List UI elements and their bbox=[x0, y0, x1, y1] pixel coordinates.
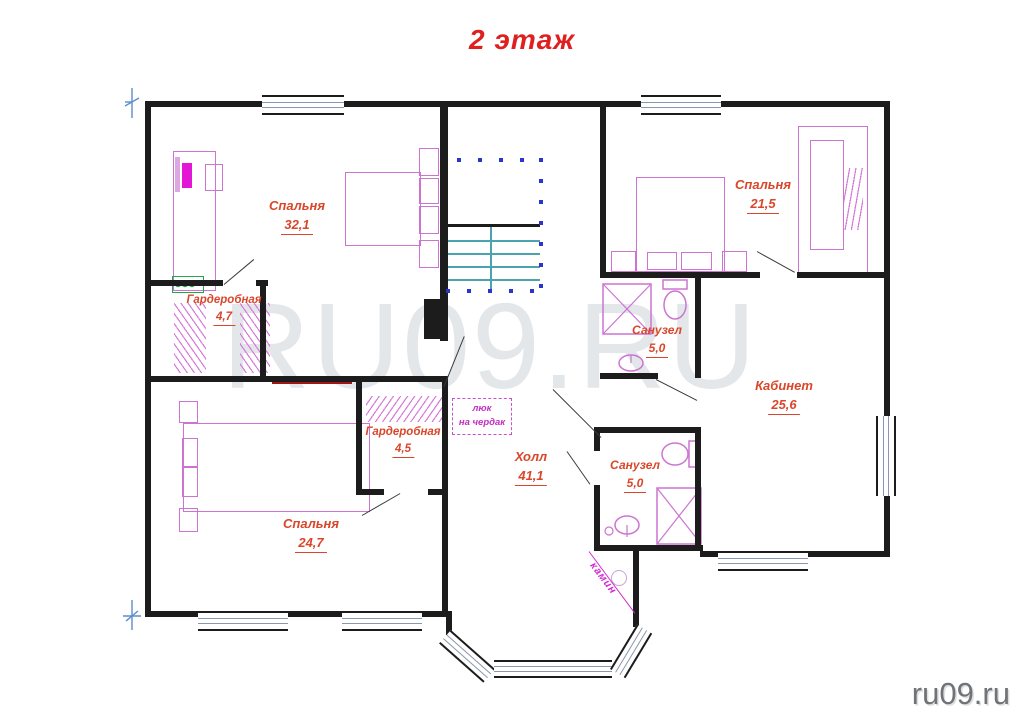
stairs-center-line bbox=[490, 226, 492, 292]
stairs-railing bbox=[446, 289, 543, 293]
door-leaf bbox=[567, 451, 591, 484]
room-label-wardrobe2: Гардеробная 4,5 bbox=[365, 426, 440, 458]
wall bbox=[151, 280, 223, 286]
site-credit: ru09.ru bbox=[912, 676, 1010, 712]
room-area: 41,1 bbox=[515, 469, 546, 486]
room-area: 5,0 bbox=[624, 477, 647, 493]
axis-break-mark bbox=[122, 88, 142, 118]
pillow bbox=[182, 438, 198, 467]
bay-window-left bbox=[439, 630, 495, 683]
wall bbox=[356, 489, 384, 495]
room-name: Спальня bbox=[269, 199, 325, 214]
room-area: 5,0 bbox=[646, 342, 669, 358]
nightstand bbox=[179, 508, 198, 532]
wall bbox=[633, 551, 639, 627]
nightstand bbox=[611, 251, 636, 272]
wall bbox=[594, 545, 703, 551]
room-area: 32,1 bbox=[281, 218, 312, 235]
pillow bbox=[419, 178, 439, 204]
room-area: 4,7 bbox=[213, 311, 235, 326]
room-label-bedroom3: Спальня 21,5 bbox=[735, 178, 791, 214]
nightstand bbox=[419, 240, 439, 268]
room-label-wardrobe1: Гардеробная 4,7 bbox=[186, 294, 261, 326]
bed bbox=[345, 172, 421, 246]
wall bbox=[594, 427, 701, 433]
window bbox=[718, 551, 808, 571]
stairs-landing-edge bbox=[446, 224, 540, 227]
room-area: 21,5 bbox=[747, 197, 778, 214]
room-label-bedroom1: Спальня 32,1 bbox=[269, 199, 325, 235]
wall bbox=[600, 373, 658, 379]
window bbox=[641, 95, 721, 115]
room-name: Гардеробная bbox=[186, 294, 261, 307]
stairs-railing bbox=[539, 158, 543, 293]
monitor bbox=[182, 163, 192, 188]
nightstand bbox=[419, 148, 439, 176]
stairs-step bbox=[446, 266, 540, 268]
room-label-bedroom2: Спальня 24,7 bbox=[283, 517, 339, 553]
room-name: Спальня bbox=[735, 178, 791, 193]
page-title: 2 этаж bbox=[0, 24, 1024, 56]
bed bbox=[183, 423, 370, 512]
door-leaf bbox=[757, 251, 795, 273]
room-label-office: Кабинет 25,6 bbox=[755, 379, 813, 415]
pillow bbox=[681, 252, 712, 270]
wall bbox=[600, 101, 606, 272]
wall bbox=[145, 101, 151, 617]
room-label-bathroom2: Санузел 5,0 bbox=[610, 459, 660, 493]
chair bbox=[205, 164, 223, 191]
nightstand bbox=[722, 251, 747, 272]
window bbox=[876, 416, 896, 496]
pillow bbox=[182, 467, 198, 497]
sink bbox=[603, 513, 641, 541]
room-area: 25,6 bbox=[768, 398, 799, 415]
wardrobe-shelves-hatch bbox=[844, 168, 863, 230]
wardrobe-shelves-hatch bbox=[366, 396, 446, 422]
wall bbox=[442, 382, 448, 489]
pillow bbox=[647, 252, 677, 270]
stairs-step bbox=[446, 279, 540, 281]
wall bbox=[442, 489, 448, 611]
room-name: Санузел bbox=[632, 324, 682, 338]
wall bbox=[797, 272, 890, 278]
wall bbox=[695, 278, 701, 378]
attic-hatch-label-line2: на чердак bbox=[453, 416, 511, 430]
room-name: Гардеробная bbox=[365, 426, 440, 439]
stairs-railing bbox=[457, 158, 543, 162]
window bbox=[342, 611, 422, 631]
wall bbox=[594, 485, 600, 551]
wall-marker bbox=[272, 382, 352, 384]
stairs-step bbox=[446, 240, 540, 242]
floor-plan-page: RU09.RU 2 этаж bbox=[0, 0, 1024, 723]
axis-break-mark bbox=[122, 600, 142, 630]
wall bbox=[695, 427, 701, 551]
attic-hatch-box: люк на чердак bbox=[452, 398, 512, 435]
room-label-bathroom1: Санузел 5,0 bbox=[632, 324, 682, 358]
wall bbox=[424, 299, 442, 339]
room-name: Кабинет bbox=[755, 379, 813, 394]
toilet bbox=[661, 279, 689, 323]
pillow bbox=[419, 206, 439, 234]
room-name: Спальня bbox=[283, 517, 339, 532]
window bbox=[198, 611, 288, 631]
wall bbox=[145, 101, 890, 107]
room-area: 24,7 bbox=[295, 536, 326, 553]
wall bbox=[600, 272, 760, 278]
desk-shelf bbox=[175, 157, 180, 192]
attic-hatch-label-line1: люк bbox=[453, 402, 511, 416]
bay-window-center bbox=[494, 660, 612, 678]
bay-window-right bbox=[610, 624, 652, 678]
stairs-step bbox=[446, 253, 540, 255]
nightstand bbox=[179, 401, 198, 423]
room-name: Санузел bbox=[610, 459, 660, 473]
room-name: Холл bbox=[515, 450, 547, 465]
room-label-hall: Холл 41,1 bbox=[515, 450, 547, 486]
wardrobe-inner bbox=[810, 140, 844, 250]
wall bbox=[356, 382, 362, 492]
room-area: 4,5 bbox=[392, 443, 414, 458]
window bbox=[262, 95, 344, 115]
